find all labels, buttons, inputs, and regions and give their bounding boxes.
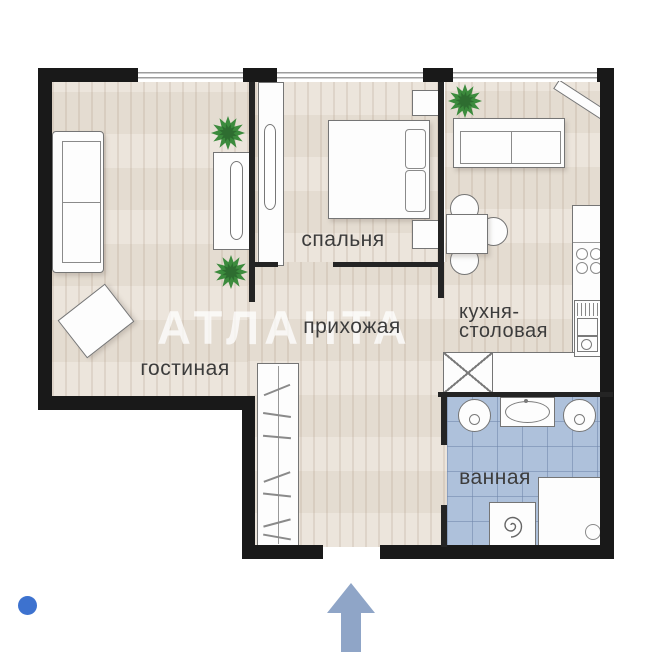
floorplan-canvas: АТЛАНТА гостиная спальня прихожая кухня-…: [0, 0, 657, 670]
basin-oval: [505, 401, 550, 423]
sink-basin: [577, 318, 598, 336]
hanger-mark: [263, 534, 291, 541]
room-label-living: гостиная: [140, 357, 229, 381]
partition-wall: [441, 505, 447, 547]
partition-wall: [249, 82, 255, 302]
plant-icon: [447, 83, 483, 119]
room-label-kitchen-line2: столовая: [459, 322, 548, 341]
wall: [38, 68, 52, 410]
room-label-hallway: прихожая: [303, 315, 401, 339]
hanger-mark: [264, 471, 291, 482]
hanger-mark: [263, 493, 291, 498]
kitchen-sofa-seat: [460, 131, 561, 164]
wardrobe-door: [264, 124, 276, 210]
wall: [242, 545, 323, 559]
tv-icon: [230, 161, 243, 240]
sofa: [52, 131, 104, 273]
hallway-wardrobe: [257, 363, 299, 547]
bathroom-sink-right: [563, 399, 596, 432]
hanger-mark: [263, 435, 291, 439]
sofa-seat: [62, 141, 101, 263]
room-label-kitchen: кухня- столовая: [459, 303, 548, 341]
entrance-arrow-icon: [327, 583, 375, 613]
room-label-bedroom: спальня: [301, 228, 384, 252]
dining-table: [446, 214, 488, 254]
entrance-arrow-shaft: [341, 612, 361, 652]
corner-cabinet: [443, 352, 493, 394]
partition-wall: [441, 397, 447, 445]
sink-drainboard: [577, 303, 598, 316]
wall: [242, 396, 255, 559]
hanger-mark: [264, 384, 291, 396]
partition-wall: [249, 262, 278, 267]
washing-machine: [489, 502, 536, 550]
partition-wall: [438, 82, 444, 298]
stove-burner: [576, 262, 588, 274]
wall: [38, 396, 255, 410]
washer-drum-spiral-icon: [491, 504, 531, 544]
window: [138, 69, 243, 81]
pillow: [405, 170, 426, 212]
shower-drain: [585, 524, 601, 540]
bathroom-sink-left: [458, 399, 491, 432]
sink-faucet: [577, 336, 598, 352]
plant-icon: [213, 254, 249, 290]
kitchen-sink: [574, 300, 601, 357]
carousel-dot[interactable]: [18, 596, 37, 615]
nightstand: [412, 220, 440, 249]
hanger-mark: [263, 412, 291, 418]
wall: [380, 545, 614, 559]
wall: [600, 68, 614, 559]
partition-wall: [333, 262, 443, 267]
wall: [423, 68, 453, 82]
wall: [38, 68, 138, 82]
hanger-mark: [263, 518, 291, 527]
kitchen-sofa: [453, 118, 565, 168]
plant-icon: [210, 115, 246, 151]
bed: [328, 120, 430, 219]
bathroom-basin-counter: [500, 397, 555, 427]
window: [277, 69, 423, 81]
nightstand: [412, 90, 440, 116]
stove-burner: [576, 248, 588, 260]
room-label-bathroom: ванная: [459, 466, 531, 490]
partition-wall: [438, 392, 613, 397]
window: [453, 69, 597, 81]
wall: [243, 68, 277, 82]
pillow: [405, 129, 426, 169]
